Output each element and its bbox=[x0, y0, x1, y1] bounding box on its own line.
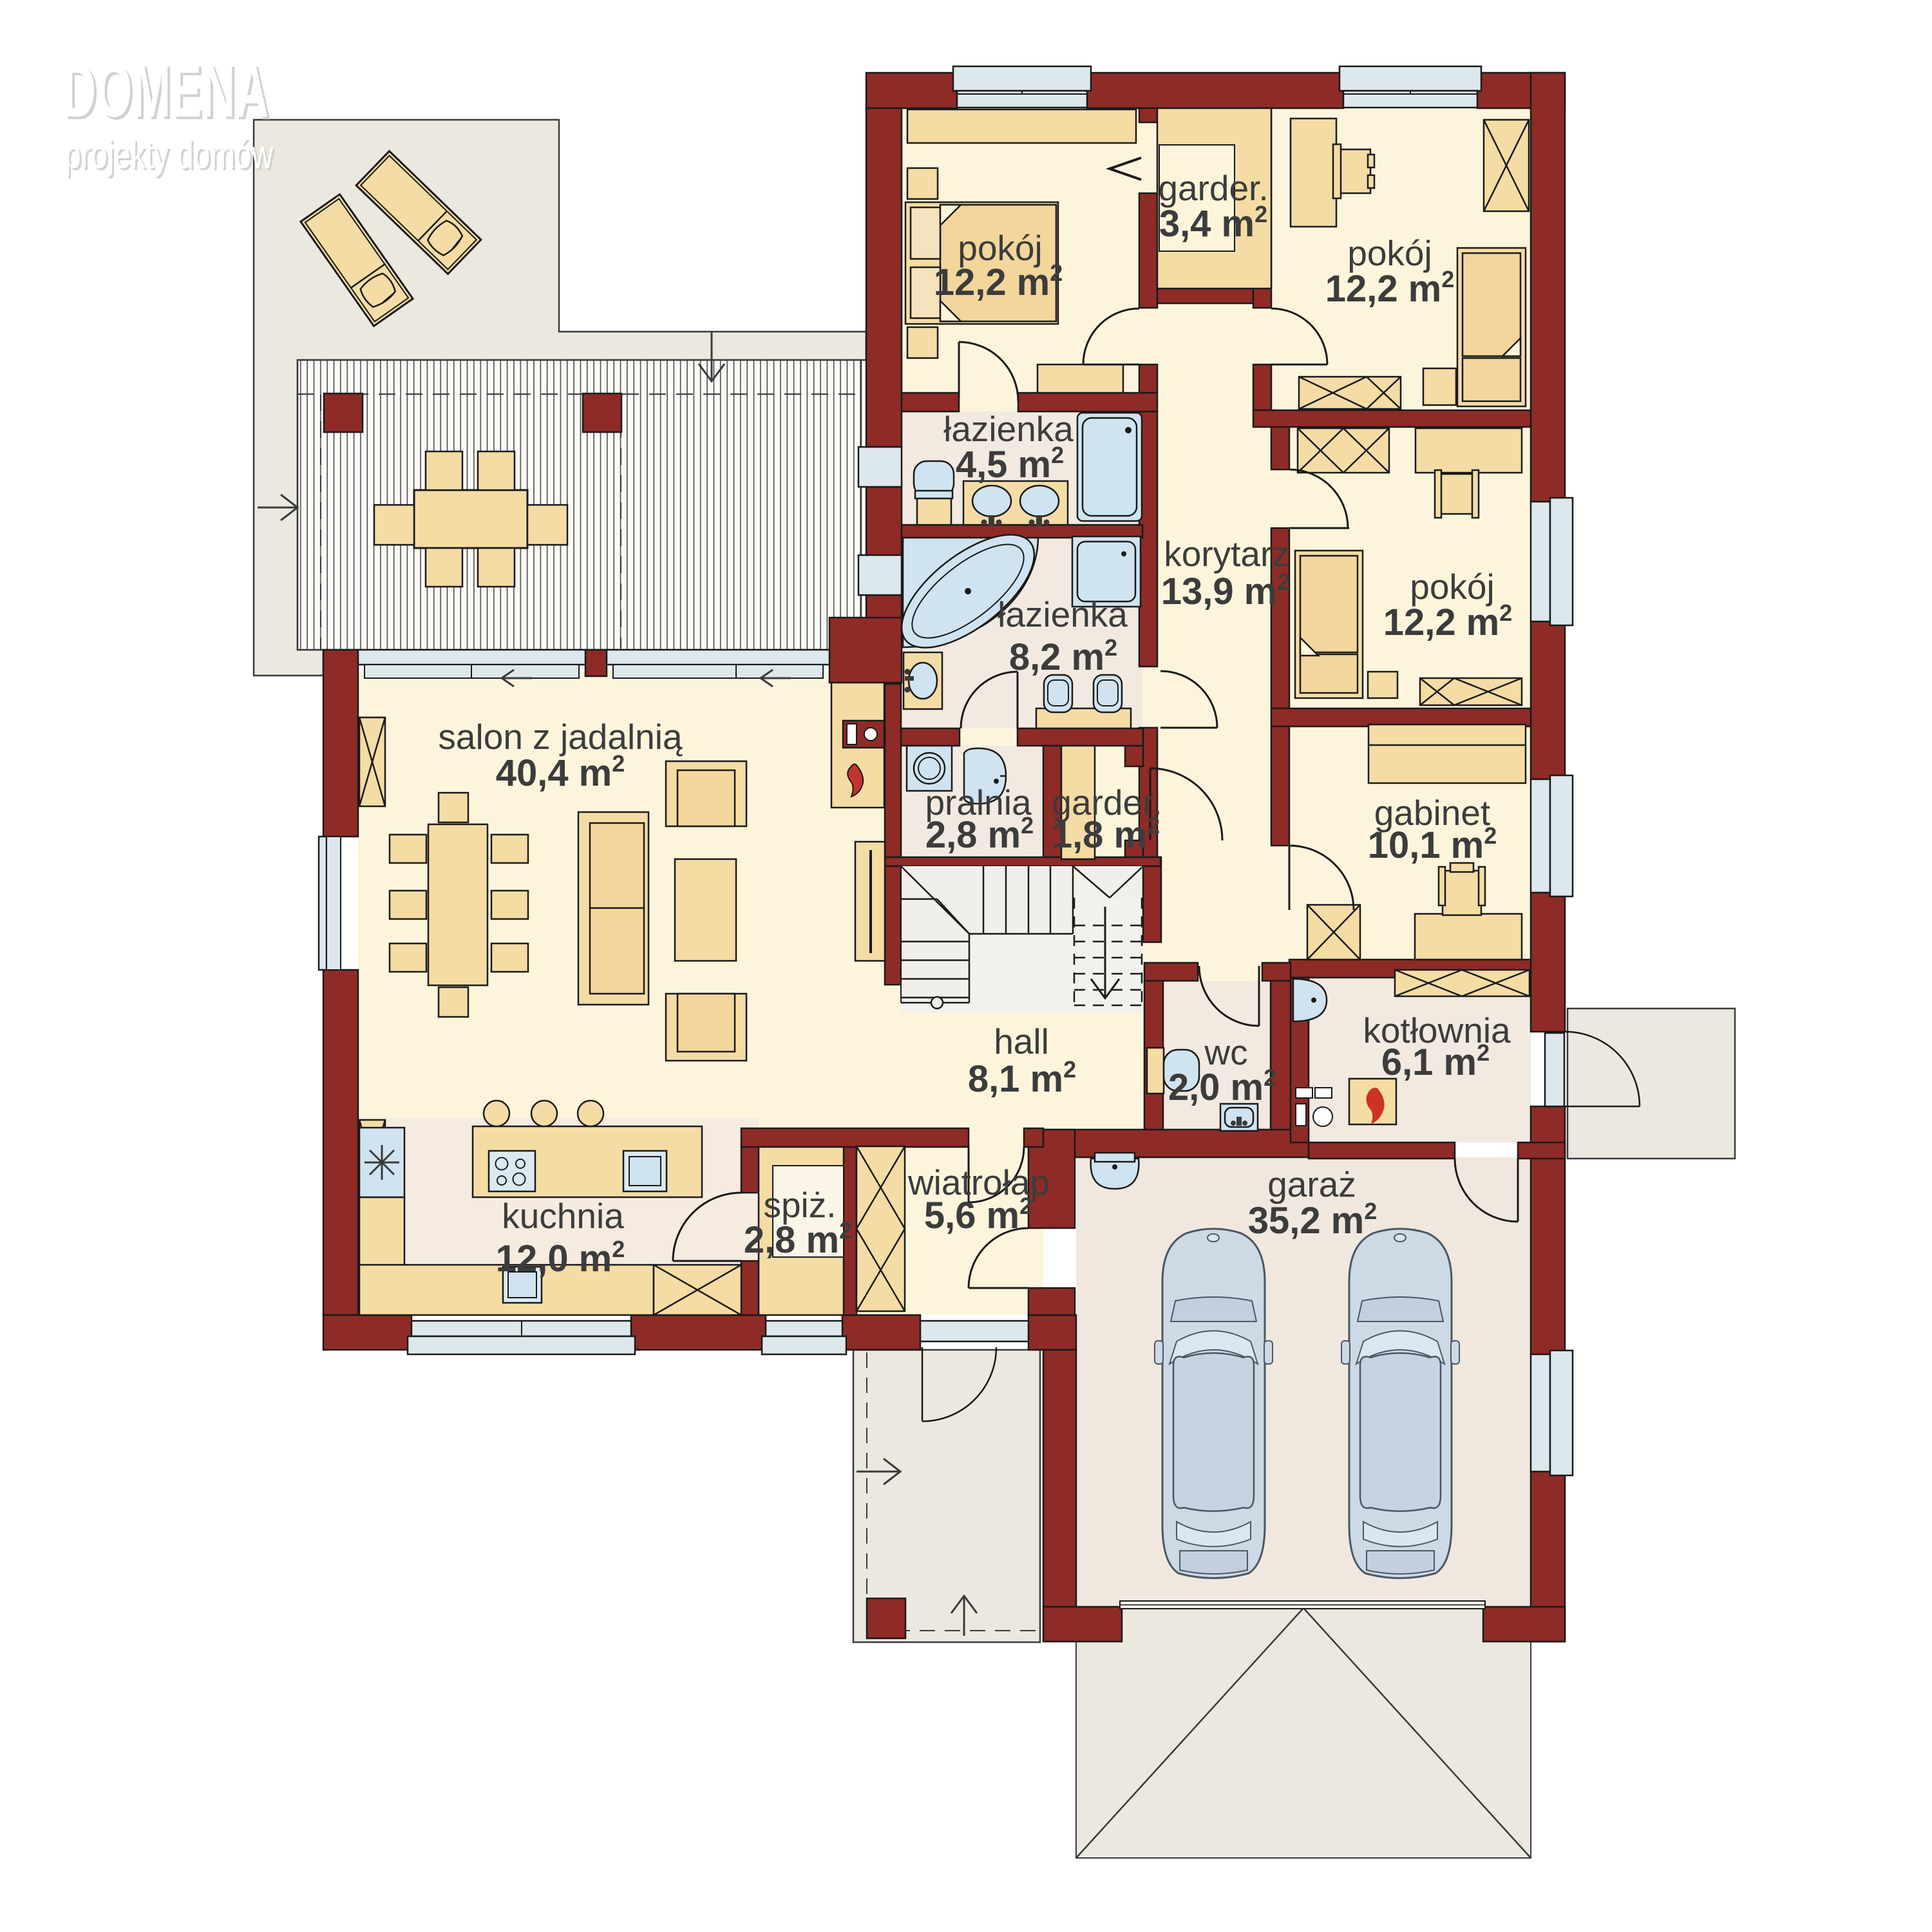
svg-text:6,1 m2: 6,1 m2 bbox=[1381, 1039, 1490, 1083]
svg-text:2,8 m2: 2,8 m2 bbox=[744, 1217, 852, 1261]
svg-text:kuchnia: kuchnia bbox=[502, 1196, 624, 1236]
svg-text:garaż: garaż bbox=[1267, 1164, 1356, 1204]
svg-text:garder.: garder. bbox=[1158, 168, 1268, 208]
svg-text:pokój: pokój bbox=[1410, 567, 1494, 607]
svg-text:8,2 m2: 8,2 m2 bbox=[1009, 634, 1117, 678]
svg-text:projekty domów: projekty domów bbox=[64, 133, 273, 177]
svg-text:12,0 m2: 12,0 m2 bbox=[496, 1236, 625, 1280]
svg-text:40,4 m2: 40,4 m2 bbox=[496, 750, 625, 794]
svg-text:12,2 m2: 12,2 m2 bbox=[1383, 600, 1513, 643]
svg-text:12,2 m2: 12,2 m2 bbox=[934, 260, 1063, 303]
svg-text:3,4 m2: 3,4 m2 bbox=[1159, 201, 1267, 245]
svg-text:łazienka: łazienka bbox=[998, 594, 1128, 634]
svg-text:4,5 m2: 4,5 m2 bbox=[956, 442, 1064, 486]
svg-text:korytarz: korytarz bbox=[1164, 534, 1290, 574]
svg-text:8,1 m2: 8,1 m2 bbox=[968, 1056, 1076, 1100]
svg-text:salon z jadalnią: salon z jadalnią bbox=[438, 717, 683, 757]
svg-text:DOMENA: DOMENA bbox=[62, 48, 269, 133]
svg-text:pokój: pokój bbox=[1347, 233, 1432, 273]
svg-text:35,2 m2: 35,2 m2 bbox=[1248, 1198, 1378, 1242]
svg-text:12,2 m2: 12,2 m2 bbox=[1325, 266, 1455, 310]
svg-text:13,9 m2: 13,9 m2 bbox=[1161, 569, 1291, 612]
svg-text:2,0 m2: 2,0 m2 bbox=[1168, 1065, 1276, 1108]
svg-text:hall: hall bbox=[994, 1021, 1049, 1061]
svg-text:1,8 m2: 1,8 m2 bbox=[1052, 812, 1160, 856]
svg-text:5,6 m2: 5,6 m2 bbox=[924, 1193, 1032, 1236]
svg-text:2,8 m2: 2,8 m2 bbox=[925, 812, 1034, 856]
svg-text:10,1 m2: 10,1 m2 bbox=[1368, 822, 1497, 866]
